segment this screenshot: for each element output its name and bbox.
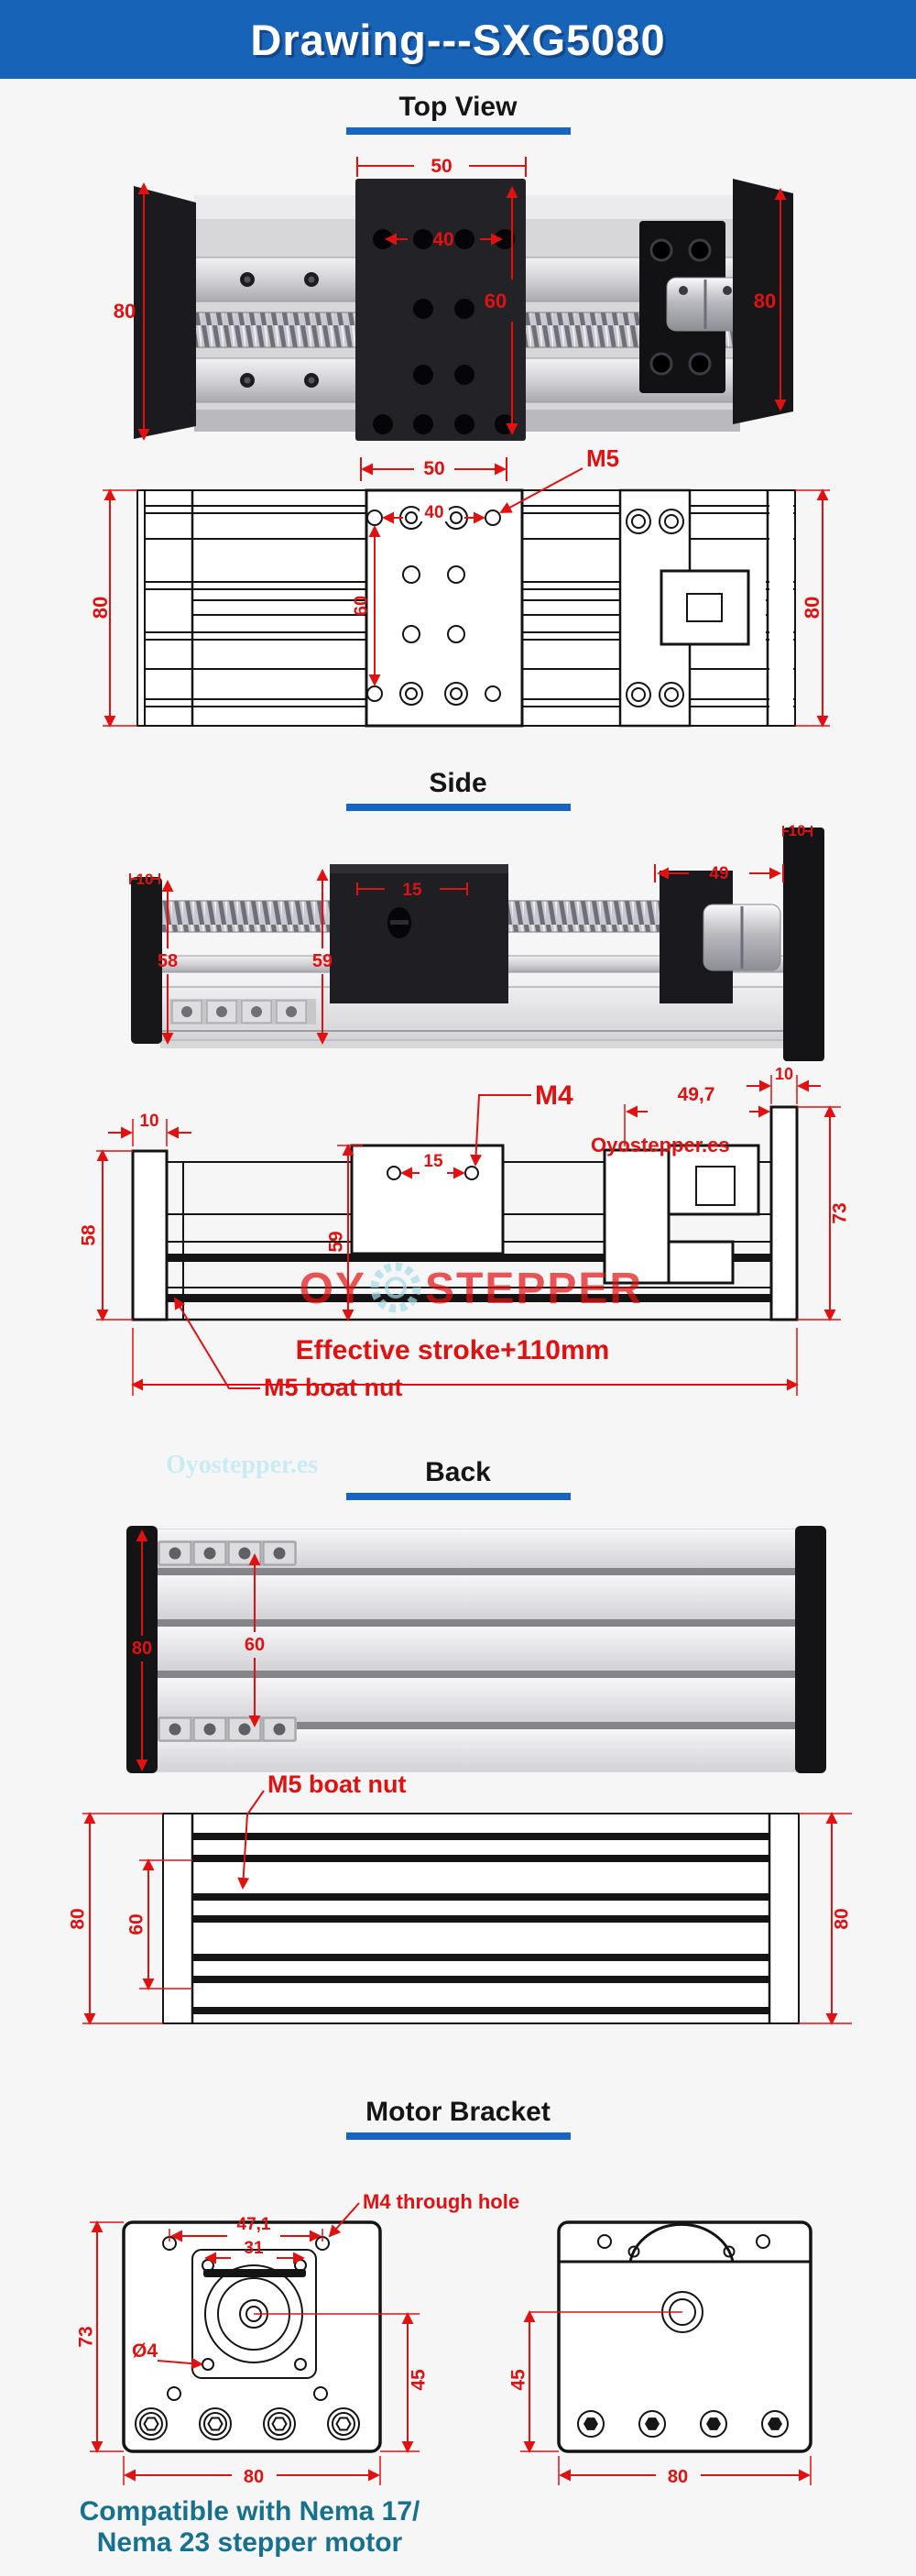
page-title: Drawing---SXG5080	[250, 15, 665, 65]
watermark-logo-stepper: STEPPER	[425, 1265, 643, 1313]
dim-top-photo-80-right: 80	[754, 290, 776, 312]
dim-side-photo-10-left: 10	[136, 871, 154, 888]
compatibility-line1: Compatible with Nema 17/	[14, 2496, 485, 2527]
dim-side-cad-10-left: 10	[139, 1112, 158, 1131]
top-view-heading: Top View	[0, 92, 916, 123]
motor-bracket-cad: 47,1 31 M4 through hole 73 Ø4 45 80	[37, 2163, 879, 2493]
dim-top-photo-60: 60	[485, 290, 507, 312]
watermark-logo-oy: OY	[300, 1265, 366, 1313]
coupling-side	[703, 904, 780, 970]
back-underline	[346, 1493, 571, 1500]
cad-coupling	[661, 571, 748, 644]
side-cad-bearing-block	[605, 1150, 669, 1283]
label-effective-stroke: Effective stroke+110mm	[296, 1335, 610, 1365]
dim-bracket-dia4: Ø4	[132, 2340, 158, 2362]
dim-side-photo-49: 49	[709, 864, 728, 883]
back-view-cad: M5 boat nut 80 60 80	[55, 1759, 898, 2099]
dim-back-photo-60: 60	[245, 1635, 265, 1655]
bracket-front-view: 47,1 31 M4 through hole 73 Ø4 45 80	[76, 2190, 520, 2487]
boat-nuts-bottom	[158, 1716, 297, 1742]
dim-back-cad-80-right: 80	[832, 1908, 853, 1929]
dim-bracket-73: 73	[76, 2326, 97, 2347]
dim-top-cad-60: 60	[351, 596, 371, 616]
side-view-photo: 10 58 15 59 49 10	[73, 820, 843, 1068]
section-motor-bracket: Motor Bracket	[0, 2097, 916, 2140]
dim-side-photo-15: 15	[402, 881, 422, 900]
dim-back-photo-80: 80	[132, 1639, 152, 1659]
boat-nuts-top	[158, 1540, 297, 1566]
top-view-cad: 50 M5 40 60 80 80	[92, 444, 843, 761]
label-back-cad-boat-nut: M5 boat nut	[267, 1770, 406, 1798]
section-side: Side	[0, 768, 916, 811]
dim-top-photo-50: 50	[431, 156, 452, 177]
side-cad-motor-plate	[771, 1107, 797, 1320]
side-view-cad: 10 58 15 M4 49,7 10 59 73 Effective stro…	[55, 1068, 879, 1434]
section-back: Back	[0, 1457, 916, 1500]
dim-bracket-31: 31	[244, 2239, 264, 2258]
compatibility-line2: Nema 23 stepper motor	[14, 2527, 485, 2559]
shaft-coupling	[667, 278, 744, 331]
dim-side-cad-59: 59	[326, 1231, 347, 1252]
dim-top-cad-50: 50	[423, 458, 444, 479]
compatibility-note: Compatible with Nema 17/ Nema 23 stepper…	[14, 2496, 485, 2558]
side-underline	[346, 804, 571, 811]
dim-top-photo-40: 40	[432, 229, 453, 250]
dim-top-cad-40: 40	[424, 503, 443, 522]
dim-side-cad-73: 73	[830, 1202, 851, 1223]
label-m4-through-hole: M4 through hole	[363, 2190, 519, 2213]
motor-bracket-underline	[346, 2132, 571, 2140]
top-view-underline	[346, 127, 571, 135]
watermark-side-site: Oyostepper.es	[591, 1134, 730, 1156]
dim-side-photo-59: 59	[312, 951, 333, 971]
dim-top-cad-80-left: 80	[92, 597, 112, 619]
label-side-cad-boat-nut: M5 boat nut	[264, 1374, 402, 1401]
back-cap-right	[795, 1526, 826, 1773]
dim-side-cad-10-right: 10	[775, 1068, 793, 1083]
section-top-view: Top View	[0, 92, 916, 135]
dim-top-photo-80-left: 80	[114, 300, 136, 323]
dim-bracket-80-front: 80	[244, 2467, 264, 2487]
motor-plate-side	[783, 828, 824, 1061]
top-view-photo: 50 40 80 60 80	[92, 151, 806, 463]
dim-bracket-45-side: 45	[508, 2369, 529, 2391]
dim-side-cad-15: 15	[423, 1152, 443, 1171]
dim-bracket-80-side: 80	[668, 2467, 688, 2487]
dim-back-cad-60: 60	[126, 1913, 147, 1935]
watermark-logo: OY STEPPER	[300, 1265, 643, 1313]
dim-top-cad-80-right: 80	[801, 597, 823, 619]
dim-side-cad-58: 58	[79, 1224, 100, 1246]
dim-bracket-47-1: 47,1	[237, 2215, 271, 2234]
page-header: Drawing---SXG5080	[0, 0, 916, 79]
label-side-cad-m4: M4	[535, 1080, 573, 1111]
dim-back-cad-80-left: 80	[68, 1908, 89, 1929]
side-heading: Side	[0, 768, 916, 799]
side-cad-end-plate	[133, 1151, 167, 1320]
bracket-side-view: 45 80	[508, 2222, 811, 2487]
label-top-cad-m5: M5	[586, 444, 619, 472]
motor-bracket-heading: Motor Bracket	[0, 2097, 916, 2128]
dim-side-photo-10-right: 10	[789, 822, 806, 839]
dim-side-cad-49-7: 49,7	[678, 1084, 715, 1105]
dim-bracket-45-front: 45	[409, 2369, 430, 2391]
back-view-photo: 80 60	[119, 1507, 834, 1782]
dim-side-photo-58: 58	[158, 951, 178, 971]
back-heading: Back	[0, 1457, 916, 1488]
